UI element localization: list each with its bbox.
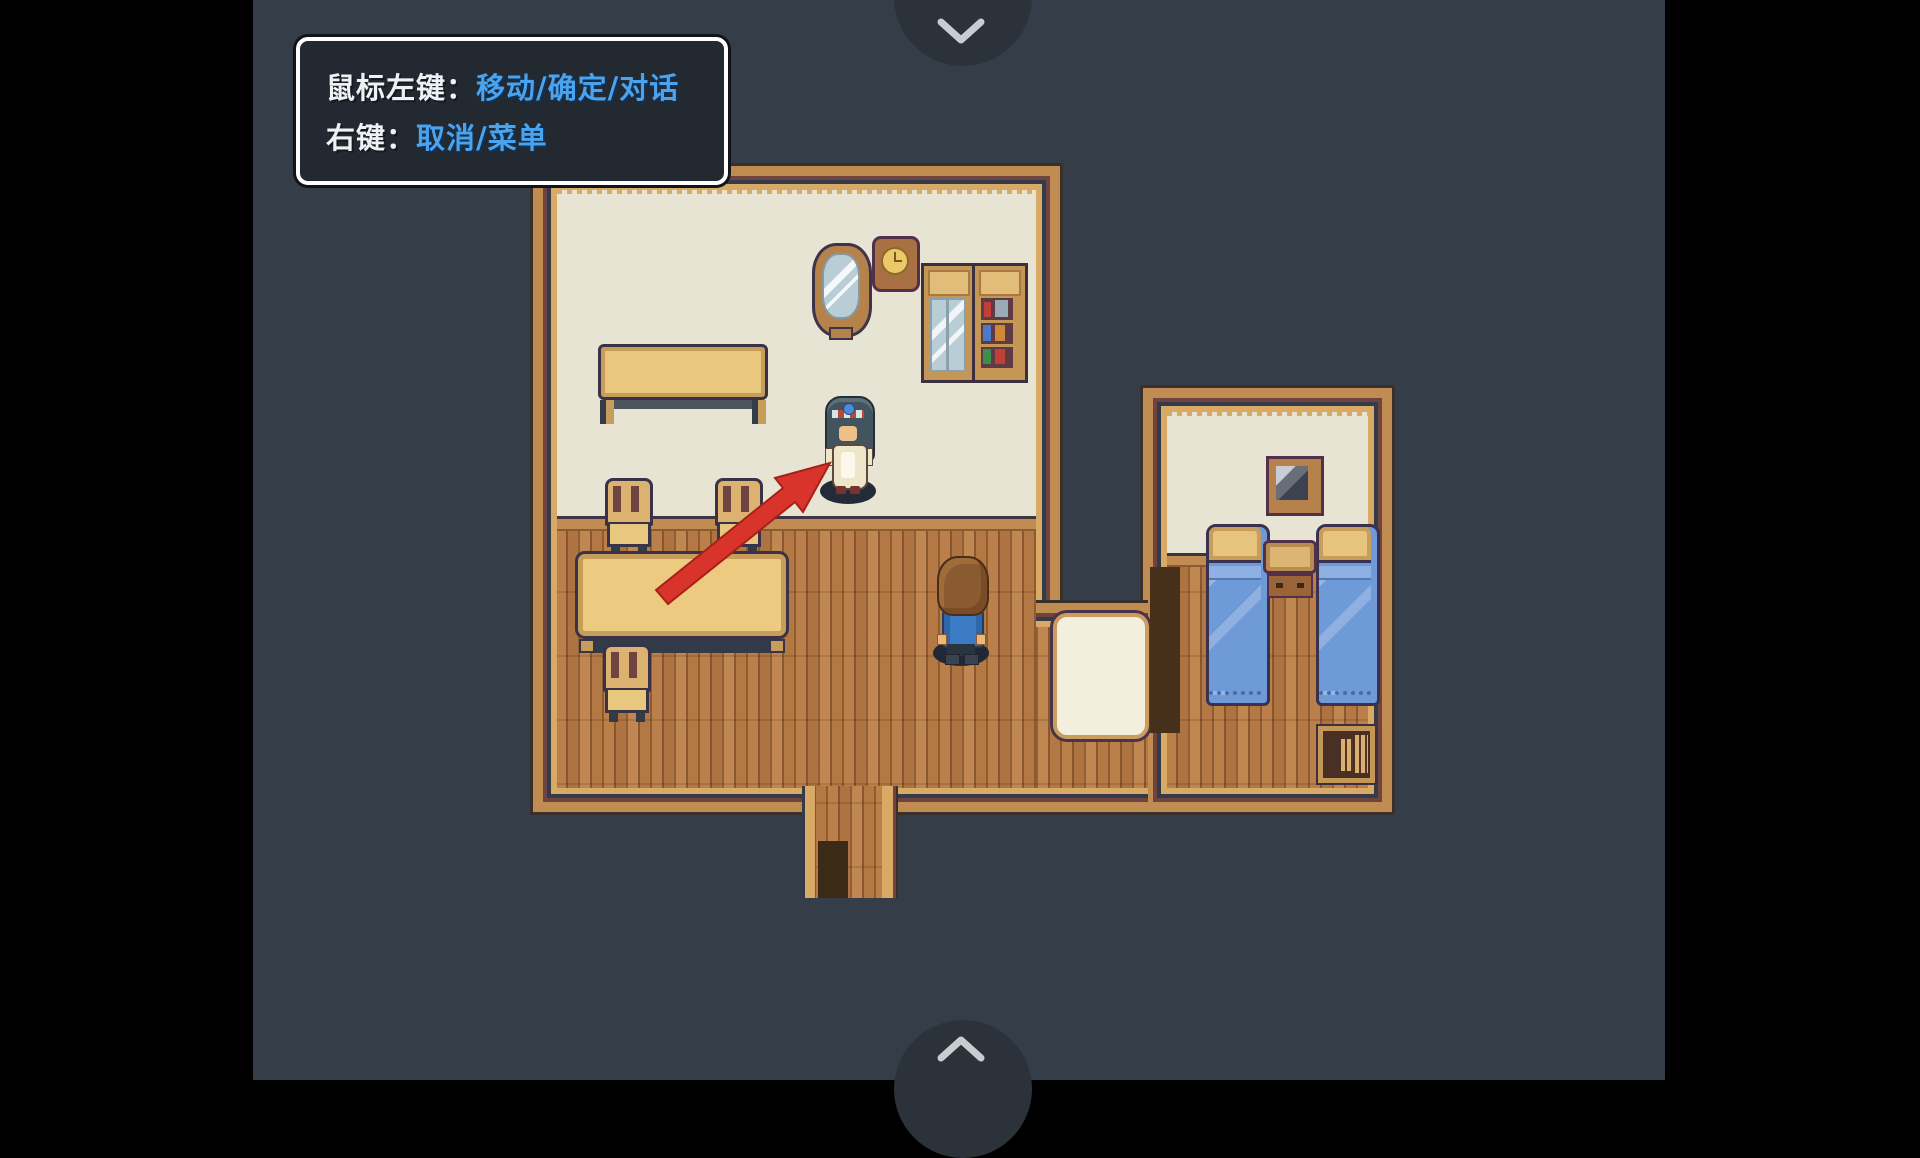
picture-frame bbox=[1266, 456, 1324, 516]
small-bookshelf bbox=[1318, 726, 1375, 783]
npc-shoe bbox=[850, 486, 860, 494]
exit-left-wall bbox=[802, 786, 815, 898]
chair-slot bbox=[629, 652, 637, 678]
chevron-up-icon[interactable] bbox=[937, 1036, 985, 1064]
chair-slot bbox=[613, 486, 621, 512]
clock-face bbox=[881, 247, 909, 275]
chair-slot bbox=[741, 486, 749, 512]
mirror-base bbox=[829, 327, 853, 340]
shelf-board bbox=[981, 344, 1013, 347]
bed-fold bbox=[1209, 566, 1261, 580]
shelf-item bbox=[995, 300, 1008, 317]
books bbox=[1355, 735, 1368, 773]
bed-blanket bbox=[1209, 566, 1261, 695]
player-shoe bbox=[945, 654, 960, 665]
chair-seat bbox=[717, 522, 761, 547]
side-table-top bbox=[598, 344, 768, 400]
nightstand-drawers bbox=[1267, 574, 1313, 598]
table-leg bbox=[752, 400, 766, 424]
exit-door-shadow bbox=[818, 841, 848, 898]
nightstand bbox=[1263, 540, 1317, 598]
bed-right bbox=[1316, 524, 1380, 706]
chair bbox=[603, 644, 651, 722]
cabinet-top-panel bbox=[928, 270, 970, 296]
player-hair bbox=[937, 556, 989, 616]
npc-shoe bbox=[836, 486, 846, 494]
tooltip-line-1: 鼠标左键：移动/确定/对话 bbox=[326, 65, 724, 107]
wall-mirror bbox=[812, 243, 872, 337]
player-hand bbox=[976, 634, 986, 645]
player-shoe bbox=[964, 654, 979, 665]
shelf-item bbox=[995, 325, 1005, 341]
hallway-bottom-wall bbox=[1036, 788, 1148, 815]
hallway-connector bbox=[1036, 600, 1148, 815]
player-character[interactable] bbox=[933, 554, 989, 666]
chair bbox=[715, 478, 763, 556]
chair-seat bbox=[607, 522, 651, 547]
chair-seat bbox=[605, 688, 649, 713]
side-table bbox=[598, 344, 768, 424]
chair-slot bbox=[723, 486, 731, 512]
exit-corridor[interactable] bbox=[802, 786, 898, 898]
dining-table-top bbox=[575, 551, 789, 639]
chair-slot bbox=[631, 486, 639, 512]
shelf-item bbox=[995, 349, 1005, 364]
books bbox=[1341, 739, 1353, 771]
cabinet-glass-doors bbox=[930, 298, 966, 372]
npc-hair-flower bbox=[843, 403, 855, 415]
tooltip-value: 移动/确定/对话 bbox=[476, 71, 679, 105]
controls-tooltip: 鼠标左键：移动/确定/对话 右键：取消/菜单 bbox=[296, 37, 728, 185]
mirror-glass bbox=[822, 253, 860, 319]
doormat bbox=[1053, 613, 1149, 739]
table-leg bbox=[600, 400, 614, 424]
letterbox-right bbox=[1665, 0, 1920, 1080]
bed-headboard bbox=[1319, 527, 1371, 563]
chair bbox=[605, 478, 653, 556]
bed-left bbox=[1206, 524, 1270, 706]
shelf-board bbox=[981, 320, 1013, 323]
shelf-item bbox=[983, 325, 991, 341]
picture-image bbox=[1276, 466, 1308, 500]
exit-right-wall bbox=[882, 786, 898, 898]
npc-face bbox=[839, 426, 857, 441]
side-table-rail bbox=[606, 400, 760, 409]
maid-npc[interactable] bbox=[820, 396, 876, 506]
chevron-down-icon[interactable] bbox=[937, 16, 985, 44]
shelf-item bbox=[983, 349, 991, 364]
wall-clock bbox=[872, 236, 920, 292]
chair-slot bbox=[611, 652, 619, 678]
cabinet-top-panel bbox=[979, 270, 1021, 296]
chair-legs bbox=[609, 712, 618, 722]
nightstand-top bbox=[1263, 540, 1317, 574]
shelf-interior bbox=[981, 298, 1013, 368]
shelf-item bbox=[984, 302, 991, 317]
bed-headboard bbox=[1209, 527, 1261, 563]
item-shelf-cabinet bbox=[972, 263, 1028, 383]
bedroom-doorway-shadow bbox=[1150, 567, 1180, 733]
bed-fold bbox=[1319, 566, 1371, 580]
bed-blanket bbox=[1319, 566, 1371, 695]
tooltip-value: 取消/菜单 bbox=[416, 121, 548, 155]
display-cabinet bbox=[921, 263, 977, 383]
tooltip-label: 鼠标左键： bbox=[326, 71, 476, 105]
tooltip-label: 右键： bbox=[326, 121, 416, 155]
dining-table bbox=[575, 551, 789, 653]
tooltip-line-2: 右键：取消/菜单 bbox=[326, 115, 724, 157]
npc-apron bbox=[841, 452, 855, 478]
letterbox-left bbox=[0, 0, 253, 1080]
player-hand bbox=[937, 634, 947, 645]
